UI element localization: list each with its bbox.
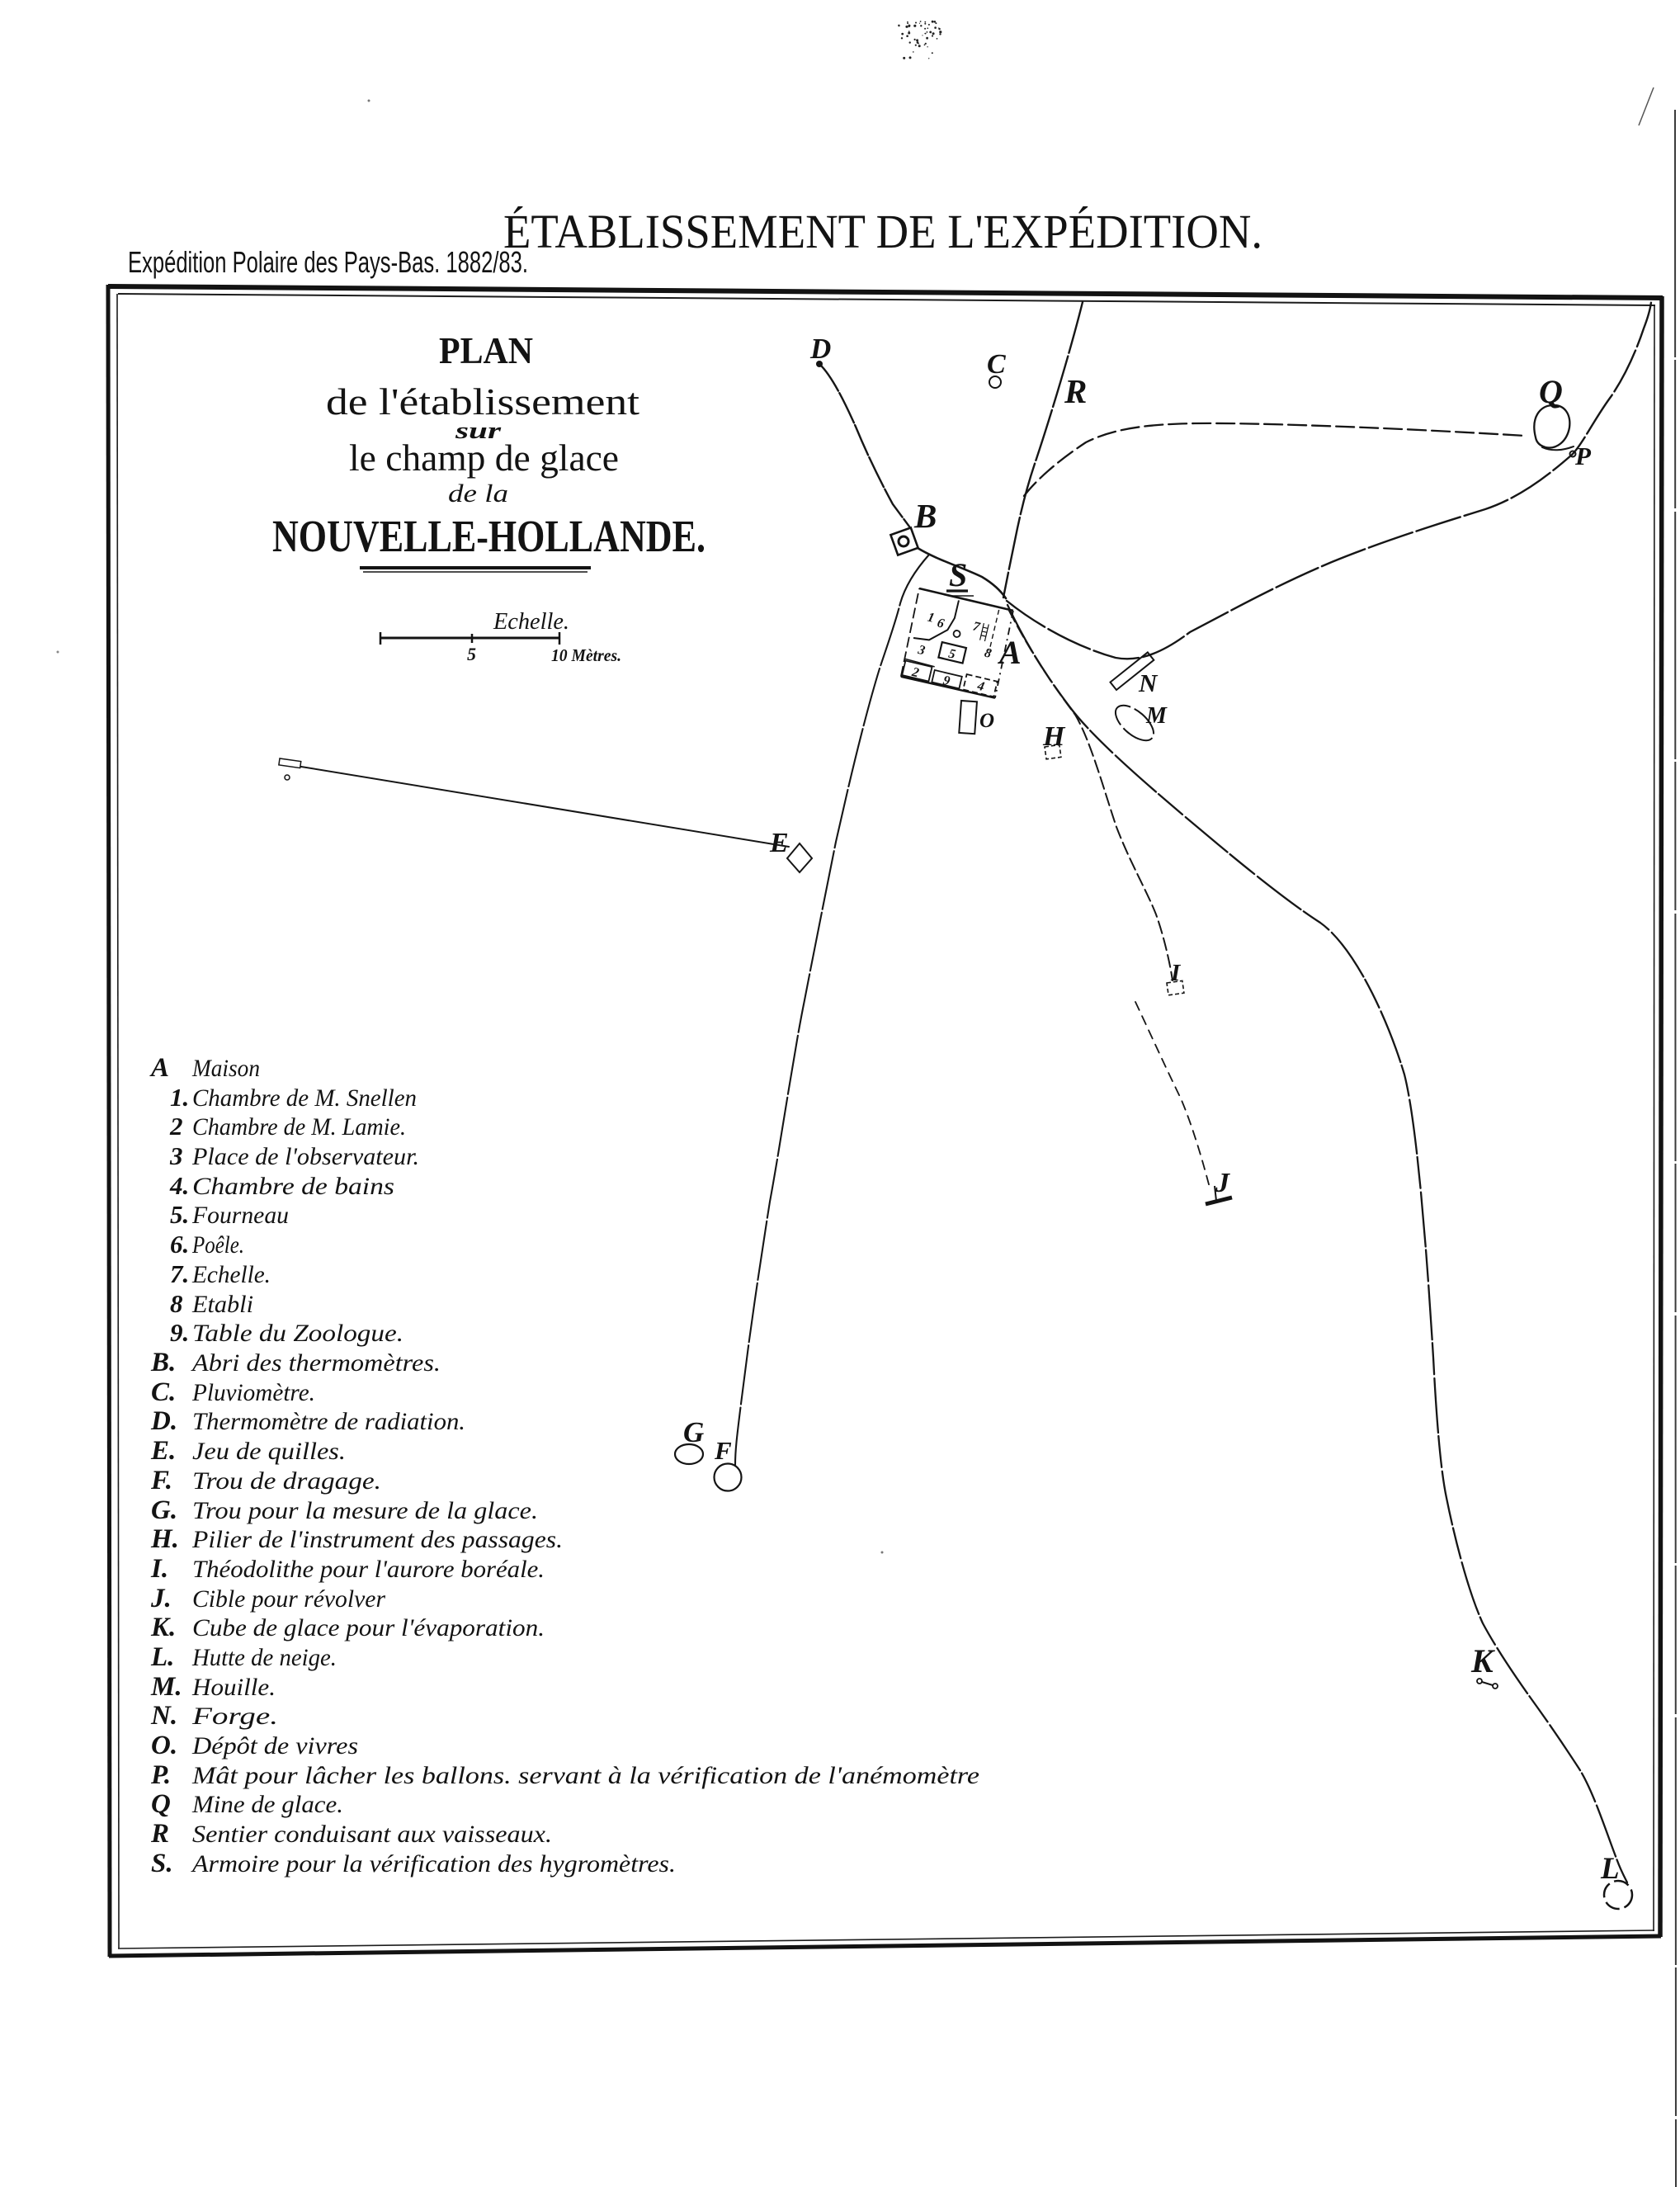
svg-text:E.: E.: [150, 1436, 176, 1466]
svg-text:Trou de dragage.: Trou de dragage.: [192, 1467, 381, 1495]
svg-text:L: L: [1600, 1852, 1620, 1886]
svg-text:Table du Zoologue.: Table du Zoologue.: [192, 1320, 403, 1347]
svg-text:Pluviomètre.: Pluviomètre.: [191, 1379, 315, 1406]
svg-text:de la: de la: [448, 479, 508, 508]
svg-text:Expédition Polaire des Pays-Ba: Expédition Polaire des Pays-Bas. 1882/83…: [128, 245, 528, 279]
svg-text:5.: 5.: [170, 1200, 189, 1229]
svg-text:3: 3: [916, 643, 927, 659]
svg-text:Chambre de M. Snellen: Chambre de M. Snellen: [192, 1084, 417, 1112]
svg-text:K: K: [1470, 1642, 1495, 1679]
svg-text:Abri des thermomètres.: Abri des thermomètres.: [191, 1349, 441, 1377]
svg-text:J.: J.: [150, 1584, 172, 1613]
svg-text:C: C: [987, 349, 1006, 380]
svg-text:Echelle.: Echelle.: [191, 1261, 271, 1288]
svg-text:Houille.: Houille.: [191, 1674, 276, 1701]
svg-text:2: 2: [169, 1112, 183, 1141]
svg-text:M: M: [1145, 703, 1168, 729]
svg-text:Armoire pour la vérification d: Armoire pour la vérification des hygromè…: [191, 1850, 676, 1878]
svg-text:D.: D.: [150, 1406, 177, 1436]
svg-text:G: G: [683, 1416, 704, 1448]
svg-text:Place de l'observateur.: Place de l'observateur.: [191, 1143, 419, 1170]
svg-text:A: A: [149, 1053, 169, 1083]
svg-text:B.: B.: [150, 1348, 176, 1377]
svg-text:S.: S.: [151, 1849, 173, 1878]
svg-text:Echelle.: Echelle.: [493, 608, 569, 635]
svg-text:6: 6: [936, 616, 946, 631]
svg-text:7.: 7.: [170, 1259, 189, 1288]
svg-text:A: A: [997, 634, 1022, 671]
svg-text:8: 8: [983, 646, 993, 661]
svg-text:D: D: [809, 333, 831, 365]
svg-text:Mine de glace.: Mine de glace.: [191, 1791, 343, 1818]
svg-text:B: B: [913, 497, 937, 535]
svg-text:I.: I.: [150, 1554, 168, 1584]
svg-text:1: 1: [926, 611, 936, 626]
svg-text:3: 3: [169, 1141, 183, 1170]
svg-text:O.: O.: [151, 1731, 177, 1760]
svg-text:Fourneau: Fourneau: [191, 1202, 289, 1229]
svg-text:F.: F.: [150, 1466, 172, 1495]
svg-text:le champ de glace: le champ de glace: [349, 437, 619, 479]
svg-text:NOUVELLE-HOLLANDE.: NOUVELLE-HOLLANDE.: [272, 511, 706, 561]
svg-text:7: 7: [971, 619, 982, 635]
svg-text:N: N: [1138, 668, 1159, 697]
svg-text:4.: 4.: [169, 1171, 189, 1200]
svg-text:Cube de glace pour l'évaporati: Cube de glace pour l'évaporation.: [192, 1614, 545, 1641]
svg-text:F: F: [714, 1436, 732, 1465]
svg-text:Sentier conduisant aux vaissea: Sentier conduisant aux vaisseaux.: [192, 1821, 552, 1848]
svg-text:ÉTABLISSEMENT DE L'EXPÉDITION.: ÉTABLISSEMENT DE L'EXPÉDITION.: [503, 205, 1262, 258]
svg-text:1.: 1.: [170, 1083, 189, 1112]
svg-text:Etabli: Etabli: [191, 1291, 253, 1318]
svg-text:H.: H.: [150, 1524, 179, 1554]
svg-text:2: 2: [910, 665, 921, 681]
svg-text:de l'établissement: de l'établissement: [326, 380, 639, 423]
svg-text:Jeu de quilles.: Jeu de quilles.: [192, 1438, 346, 1465]
svg-text:8: 8: [170, 1289, 183, 1318]
svg-text:Dépôt de vivres: Dépôt de vivres: [191, 1732, 358, 1760]
svg-text:P: P: [1574, 442, 1592, 470]
svg-text:O: O: [979, 710, 994, 732]
svg-text:R: R: [1064, 372, 1087, 410]
svg-text:C.: C.: [151, 1377, 176, 1407]
svg-text:Théodolithe pour l'aurore boré: Théodolithe pour l'aurore boréale.: [192, 1556, 545, 1583]
svg-text:Q: Q: [1539, 373, 1563, 410]
svg-text:4: 4: [975, 678, 986, 694]
svg-text:Hutte de neige.: Hutte de neige.: [191, 1644, 337, 1671]
svg-text:L.: L.: [150, 1642, 174, 1672]
svg-text:Mât pour lâcher les ballons. s: Mât pour lâcher les ballons. servant à l…: [191, 1762, 979, 1789]
svg-text:Forge.: Forge.: [191, 1703, 278, 1730]
svg-text:S: S: [949, 556, 967, 593]
svg-text:10 Mètres.: 10 Mètres.: [551, 645, 621, 665]
svg-text:6.: 6.: [170, 1230, 189, 1259]
svg-text:5: 5: [947, 647, 957, 662]
svg-text:P.: P.: [150, 1760, 171, 1790]
svg-text:H: H: [1042, 721, 1066, 752]
svg-text:G.: G.: [151, 1495, 177, 1525]
svg-text:Q: Q: [151, 1789, 171, 1819]
svg-text:I: I: [1170, 960, 1182, 986]
svg-text:Trou pour la mesure de la glac: Trou pour la mesure de la glace.: [192, 1497, 538, 1524]
svg-text:5: 5: [467, 644, 476, 664]
svg-text:Maison: Maison: [191, 1055, 260, 1082]
svg-text:K.: K.: [150, 1613, 176, 1642]
svg-text:E: E: [769, 828, 789, 858]
svg-text:Poêle.: Poêle.: [191, 1231, 244, 1259]
svg-text:Chambre de bains: Chambre de bains: [192, 1173, 394, 1200]
svg-text:PLAN: PLAN: [439, 329, 533, 371]
svg-text:J: J: [1215, 1168, 1230, 1198]
svg-text:R: R: [150, 1819, 169, 1849]
svg-text:Chambre de M. Lamie.: Chambre de M. Lamie.: [192, 1113, 406, 1141]
svg-text:Cible pour révolver: Cible pour révolver: [192, 1585, 385, 1613]
svg-text:N.: N.: [150, 1701, 177, 1731]
svg-text:M.: M.: [150, 1672, 182, 1702]
svg-text:Thermomètre de radiation.: Thermomètre de radiation.: [192, 1408, 465, 1435]
svg-text:Pilier de l'instrument des pas: Pilier de l'instrument des passages.: [191, 1526, 563, 1553]
svg-text:9.: 9.: [170, 1318, 189, 1347]
